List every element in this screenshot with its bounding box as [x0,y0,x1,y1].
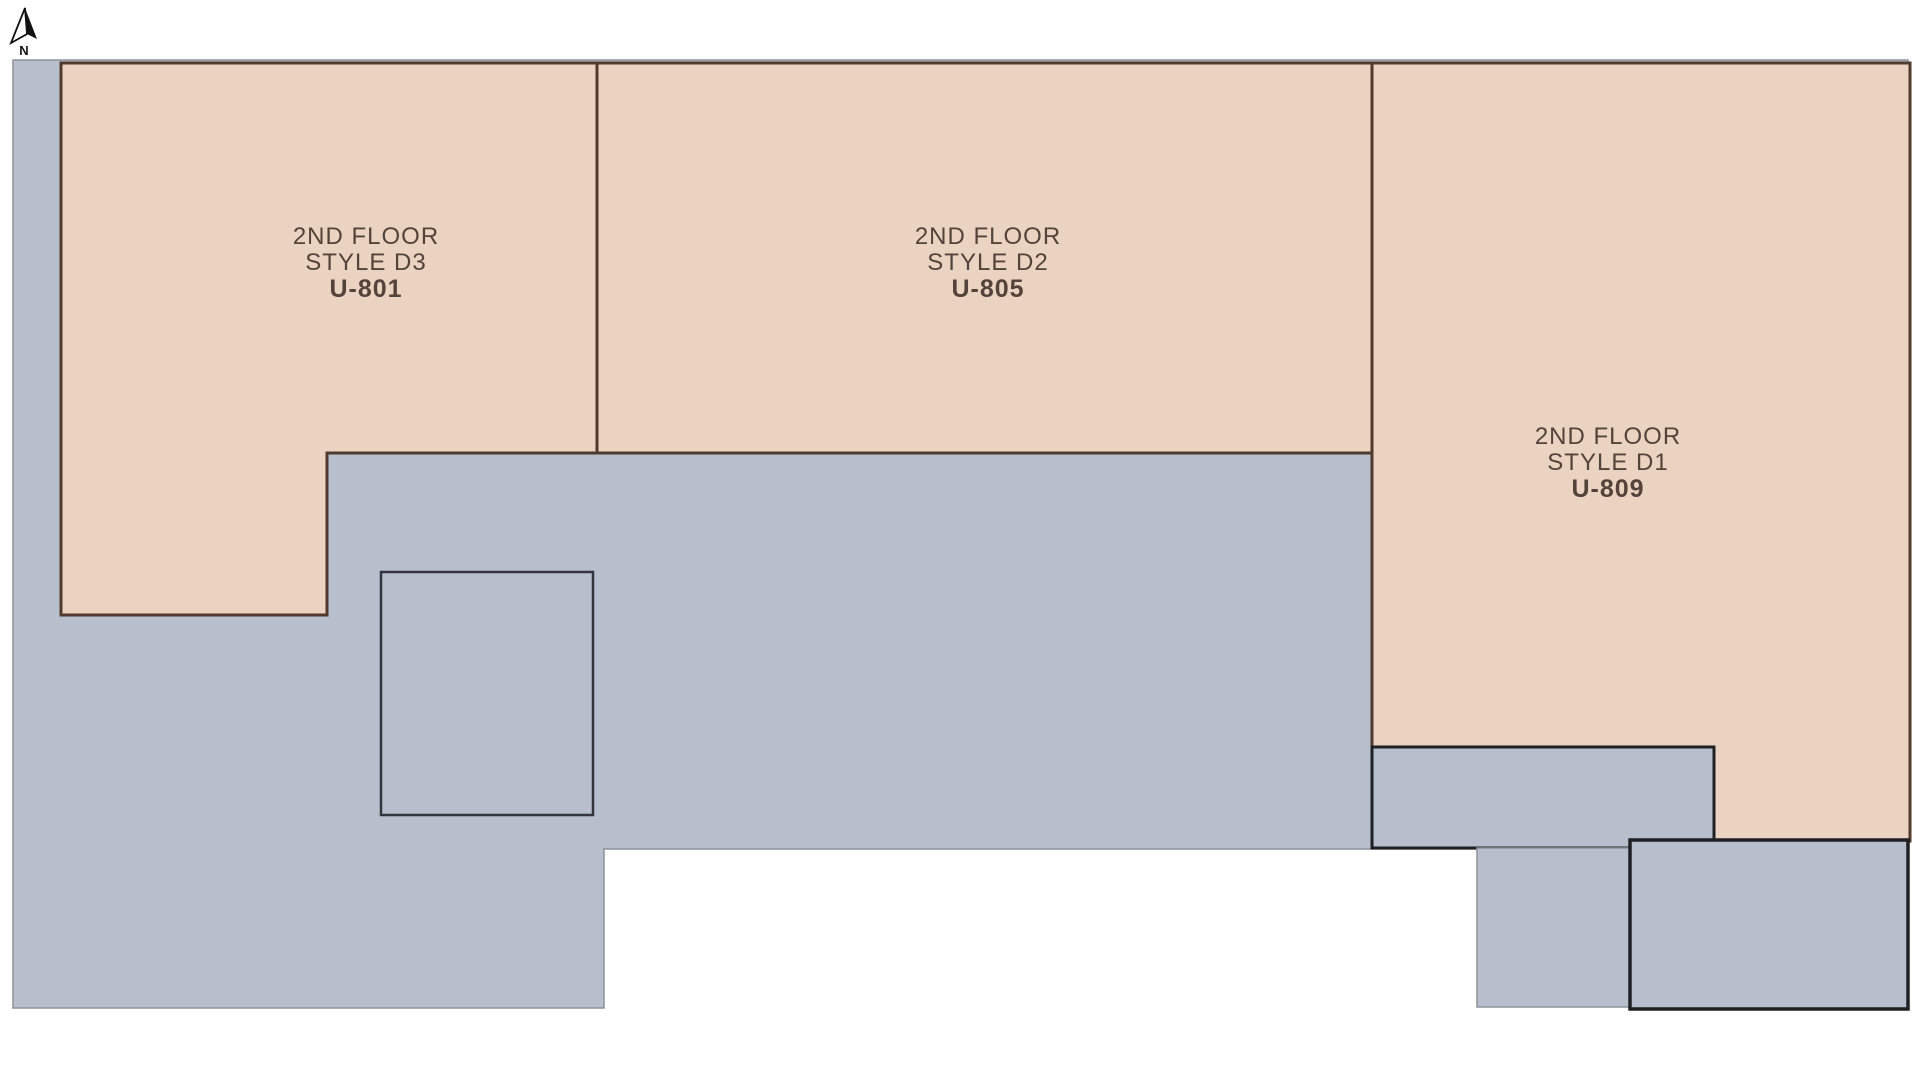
unit-u801-style-text: STYLE D3 [305,249,426,276]
unit-u805-number-text: U-805 [951,275,1024,303]
inner-room-outline [381,572,593,815]
unit-u809-number-text: U-809 [1571,475,1644,503]
unit-u805-style-text: STYLE D2 [927,249,1048,276]
deck-rect-upper [1372,747,1714,848]
deck-rect-right [1630,840,1908,1009]
unit-u809-style-text: STYLE D1 [1547,449,1668,476]
compass-arrow-left-icon [11,8,27,43]
unit-u801-number-text: U-801 [329,275,402,303]
north-compass: N [11,8,37,58]
compass-n-label: N [19,43,28,58]
floorplan-page: 2ND FLOOR STYLE D3 U-801 2ND FLOOR STYLE… [0,0,1920,1080]
unit-u805-floor-text: 2ND FLOOR [915,223,1061,250]
floorplan-canvas: 2ND FLOOR STYLE D3 U-801 2ND FLOOR STYLE… [0,0,1920,1080]
unit-u809-floor-text: 2ND FLOOR [1535,423,1681,450]
unit-u801-floor-text: 2ND FLOOR [293,223,439,250]
deck-rect-center [1477,848,1630,1007]
